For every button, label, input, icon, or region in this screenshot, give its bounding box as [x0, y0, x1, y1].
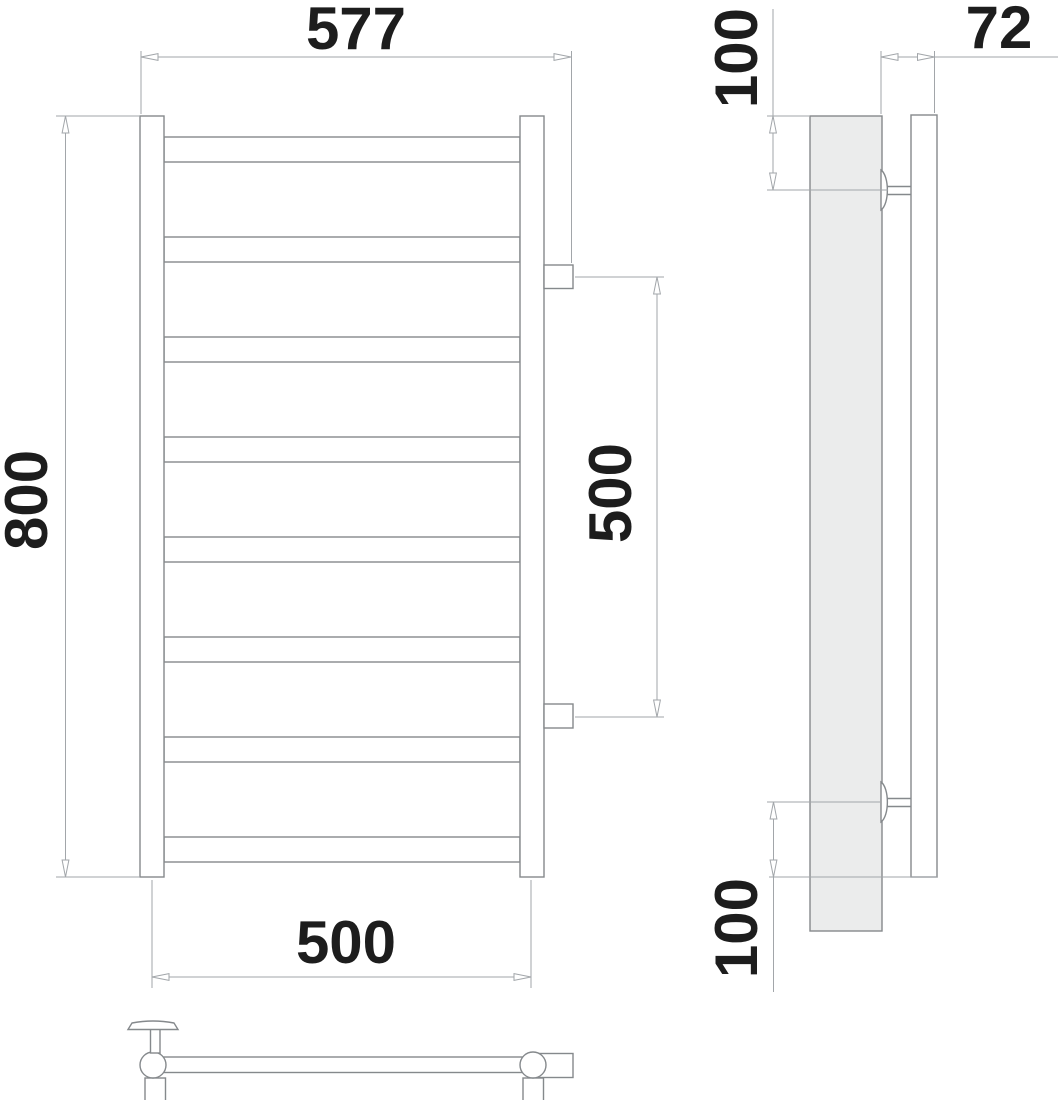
- dim-label-500-right: 500: [577, 443, 644, 543]
- technical-drawing: 577 800 500 500 100: [0, 0, 1058, 1100]
- dim-label-100-bottom: 100: [703, 878, 770, 978]
- dim-label-577: 577: [306, 0, 406, 62]
- wall-strip: [911, 115, 937, 877]
- bracket-screw-head: [881, 782, 887, 822]
- drawing-canvas: 577 800 500 500 100: [0, 0, 1058, 1100]
- arrowhead-left: [152, 974, 169, 981]
- arrowhead-left: [141, 54, 158, 61]
- arrowhead-right: [554, 54, 571, 61]
- right-post: [520, 116, 544, 877]
- dim-height: 800: [0, 116, 140, 877]
- bottom-wall-bracket: [881, 782, 911, 822]
- arrowhead-right: [918, 54, 935, 61]
- lower-connector-stub: [544, 704, 573, 728]
- left-foot-strip: [145, 1078, 166, 1100]
- left-post-section: [140, 1052, 166, 1078]
- side-view: [810, 115, 937, 931]
- top-view: [128, 1021, 573, 1100]
- top-rung-bar: [160, 1057, 546, 1073]
- rung: [164, 537, 520, 562]
- rung: [164, 337, 520, 362]
- right-foot-strip: [523, 1078, 544, 1100]
- dim-label-500-bottom: 500: [296, 909, 396, 976]
- right-post-section: [520, 1052, 546, 1078]
- rung-group: [164, 137, 520, 862]
- arrowhead-up: [770, 116, 777, 133]
- front-view: [140, 116, 573, 877]
- dim-label-100-top: 100: [703, 8, 770, 108]
- arrowhead-up: [654, 277, 661, 294]
- arrowhead-left: [881, 54, 898, 61]
- screw-stem: [151, 1029, 161, 1053]
- dim-pipe-center-width: 500: [152, 880, 531, 988]
- left-post: [140, 116, 164, 877]
- upper-connector-stub: [544, 265, 573, 289]
- dim-label-800: 800: [0, 450, 60, 550]
- rung: [164, 137, 520, 162]
- dim-label-72: 72: [966, 0, 1033, 61]
- arrowhead-down: [770, 173, 777, 190]
- screw-head-top-view: [128, 1021, 178, 1030]
- side-profile-body: [810, 116, 882, 931]
- rung: [164, 737, 520, 762]
- arrowhead-up: [770, 802, 777, 819]
- rung: [164, 837, 520, 862]
- dim-overall-width: 577: [141, 0, 572, 263]
- arrowhead-down: [62, 860, 69, 877]
- rung: [164, 637, 520, 662]
- rung: [164, 237, 520, 262]
- dim-connector-spacing: 500: [575, 277, 664, 717]
- arrowhead-down: [770, 860, 777, 877]
- arrowhead-down: [654, 700, 661, 717]
- dim-wall-depth: 72: [881, 0, 1058, 114]
- arrowhead-up: [62, 116, 69, 133]
- arrowhead-right: [514, 974, 531, 981]
- rung: [164, 437, 520, 462]
